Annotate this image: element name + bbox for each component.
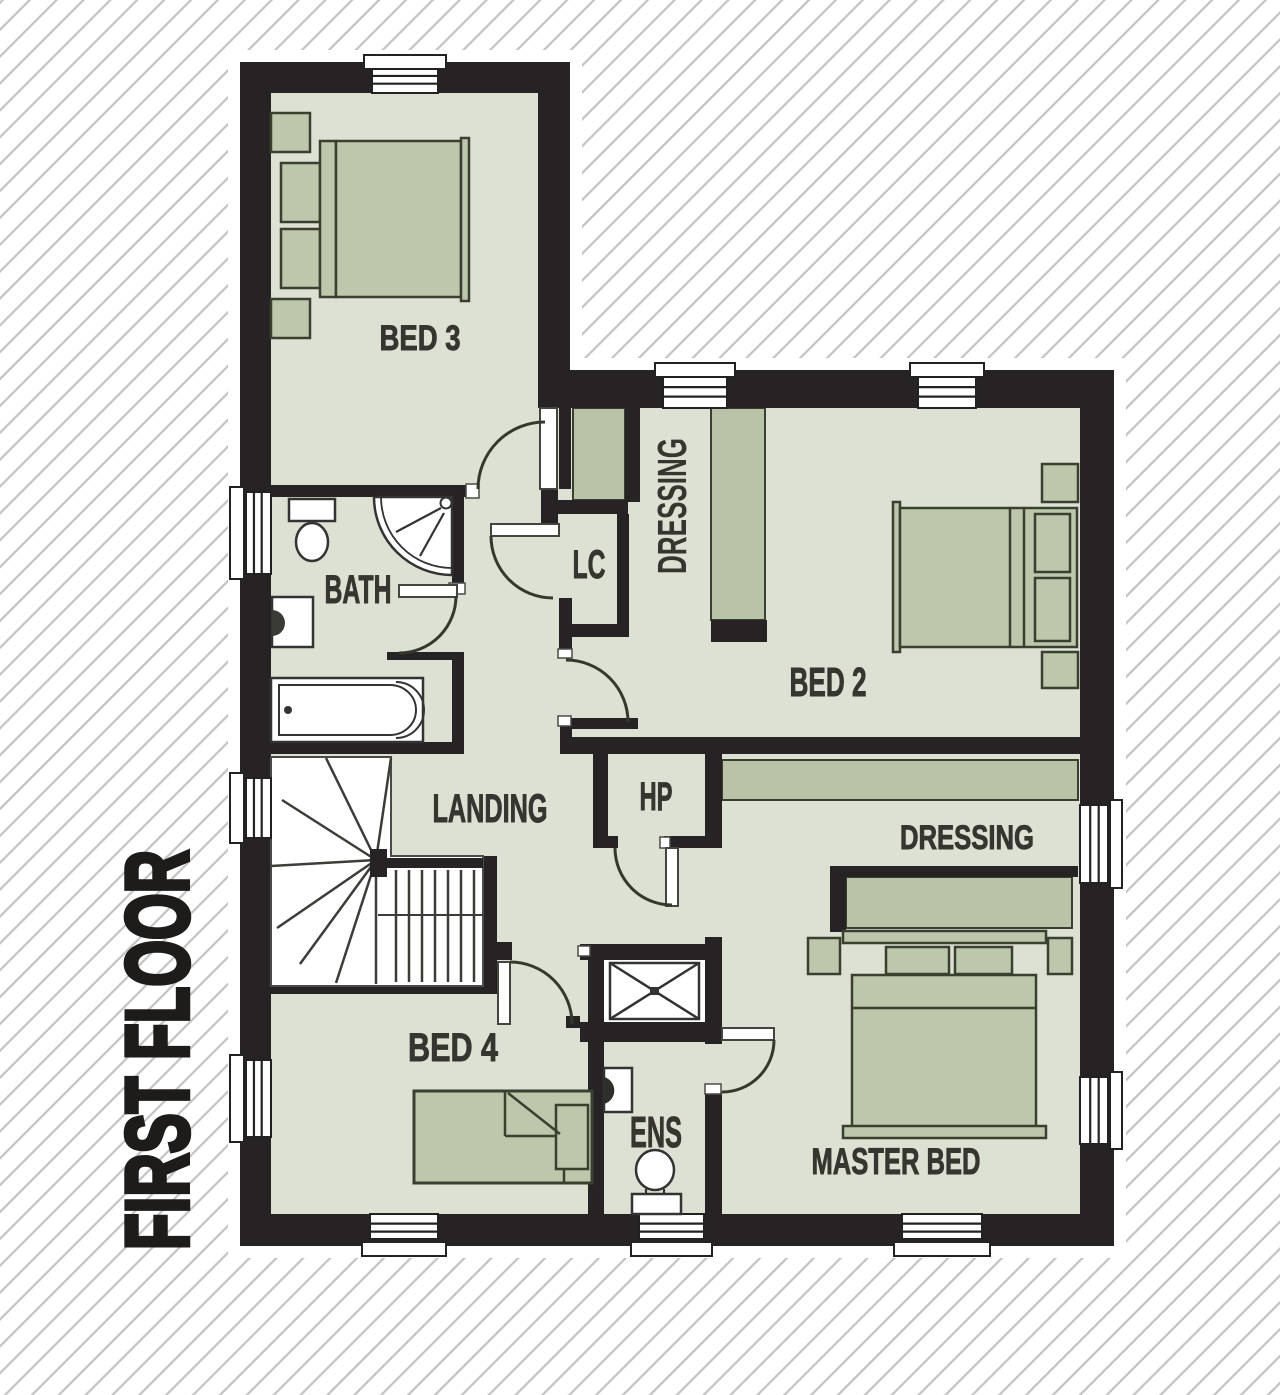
svg-text:DRESSING: DRESSING [649,438,695,574]
svg-text:BED 2: BED 2 [790,659,867,705]
svg-text:DRESSING: DRESSING [900,819,1034,857]
svg-text:LANDING: LANDING [433,787,548,831]
svg-text:BED 3: BED 3 [380,319,461,358]
svg-text:HP: HP [640,775,673,819]
svg-text:FIRST FLOOR: FIRST FLOOR [107,850,207,1250]
svg-text:MASTER BED: MASTER BED [812,1141,981,1182]
svg-text:LC: LC [573,543,606,587]
svg-text:BATH: BATH [325,568,392,612]
svg-text:ENS: ENS [630,1108,682,1157]
svg-text:BED 4: BED 4 [408,1026,499,1070]
